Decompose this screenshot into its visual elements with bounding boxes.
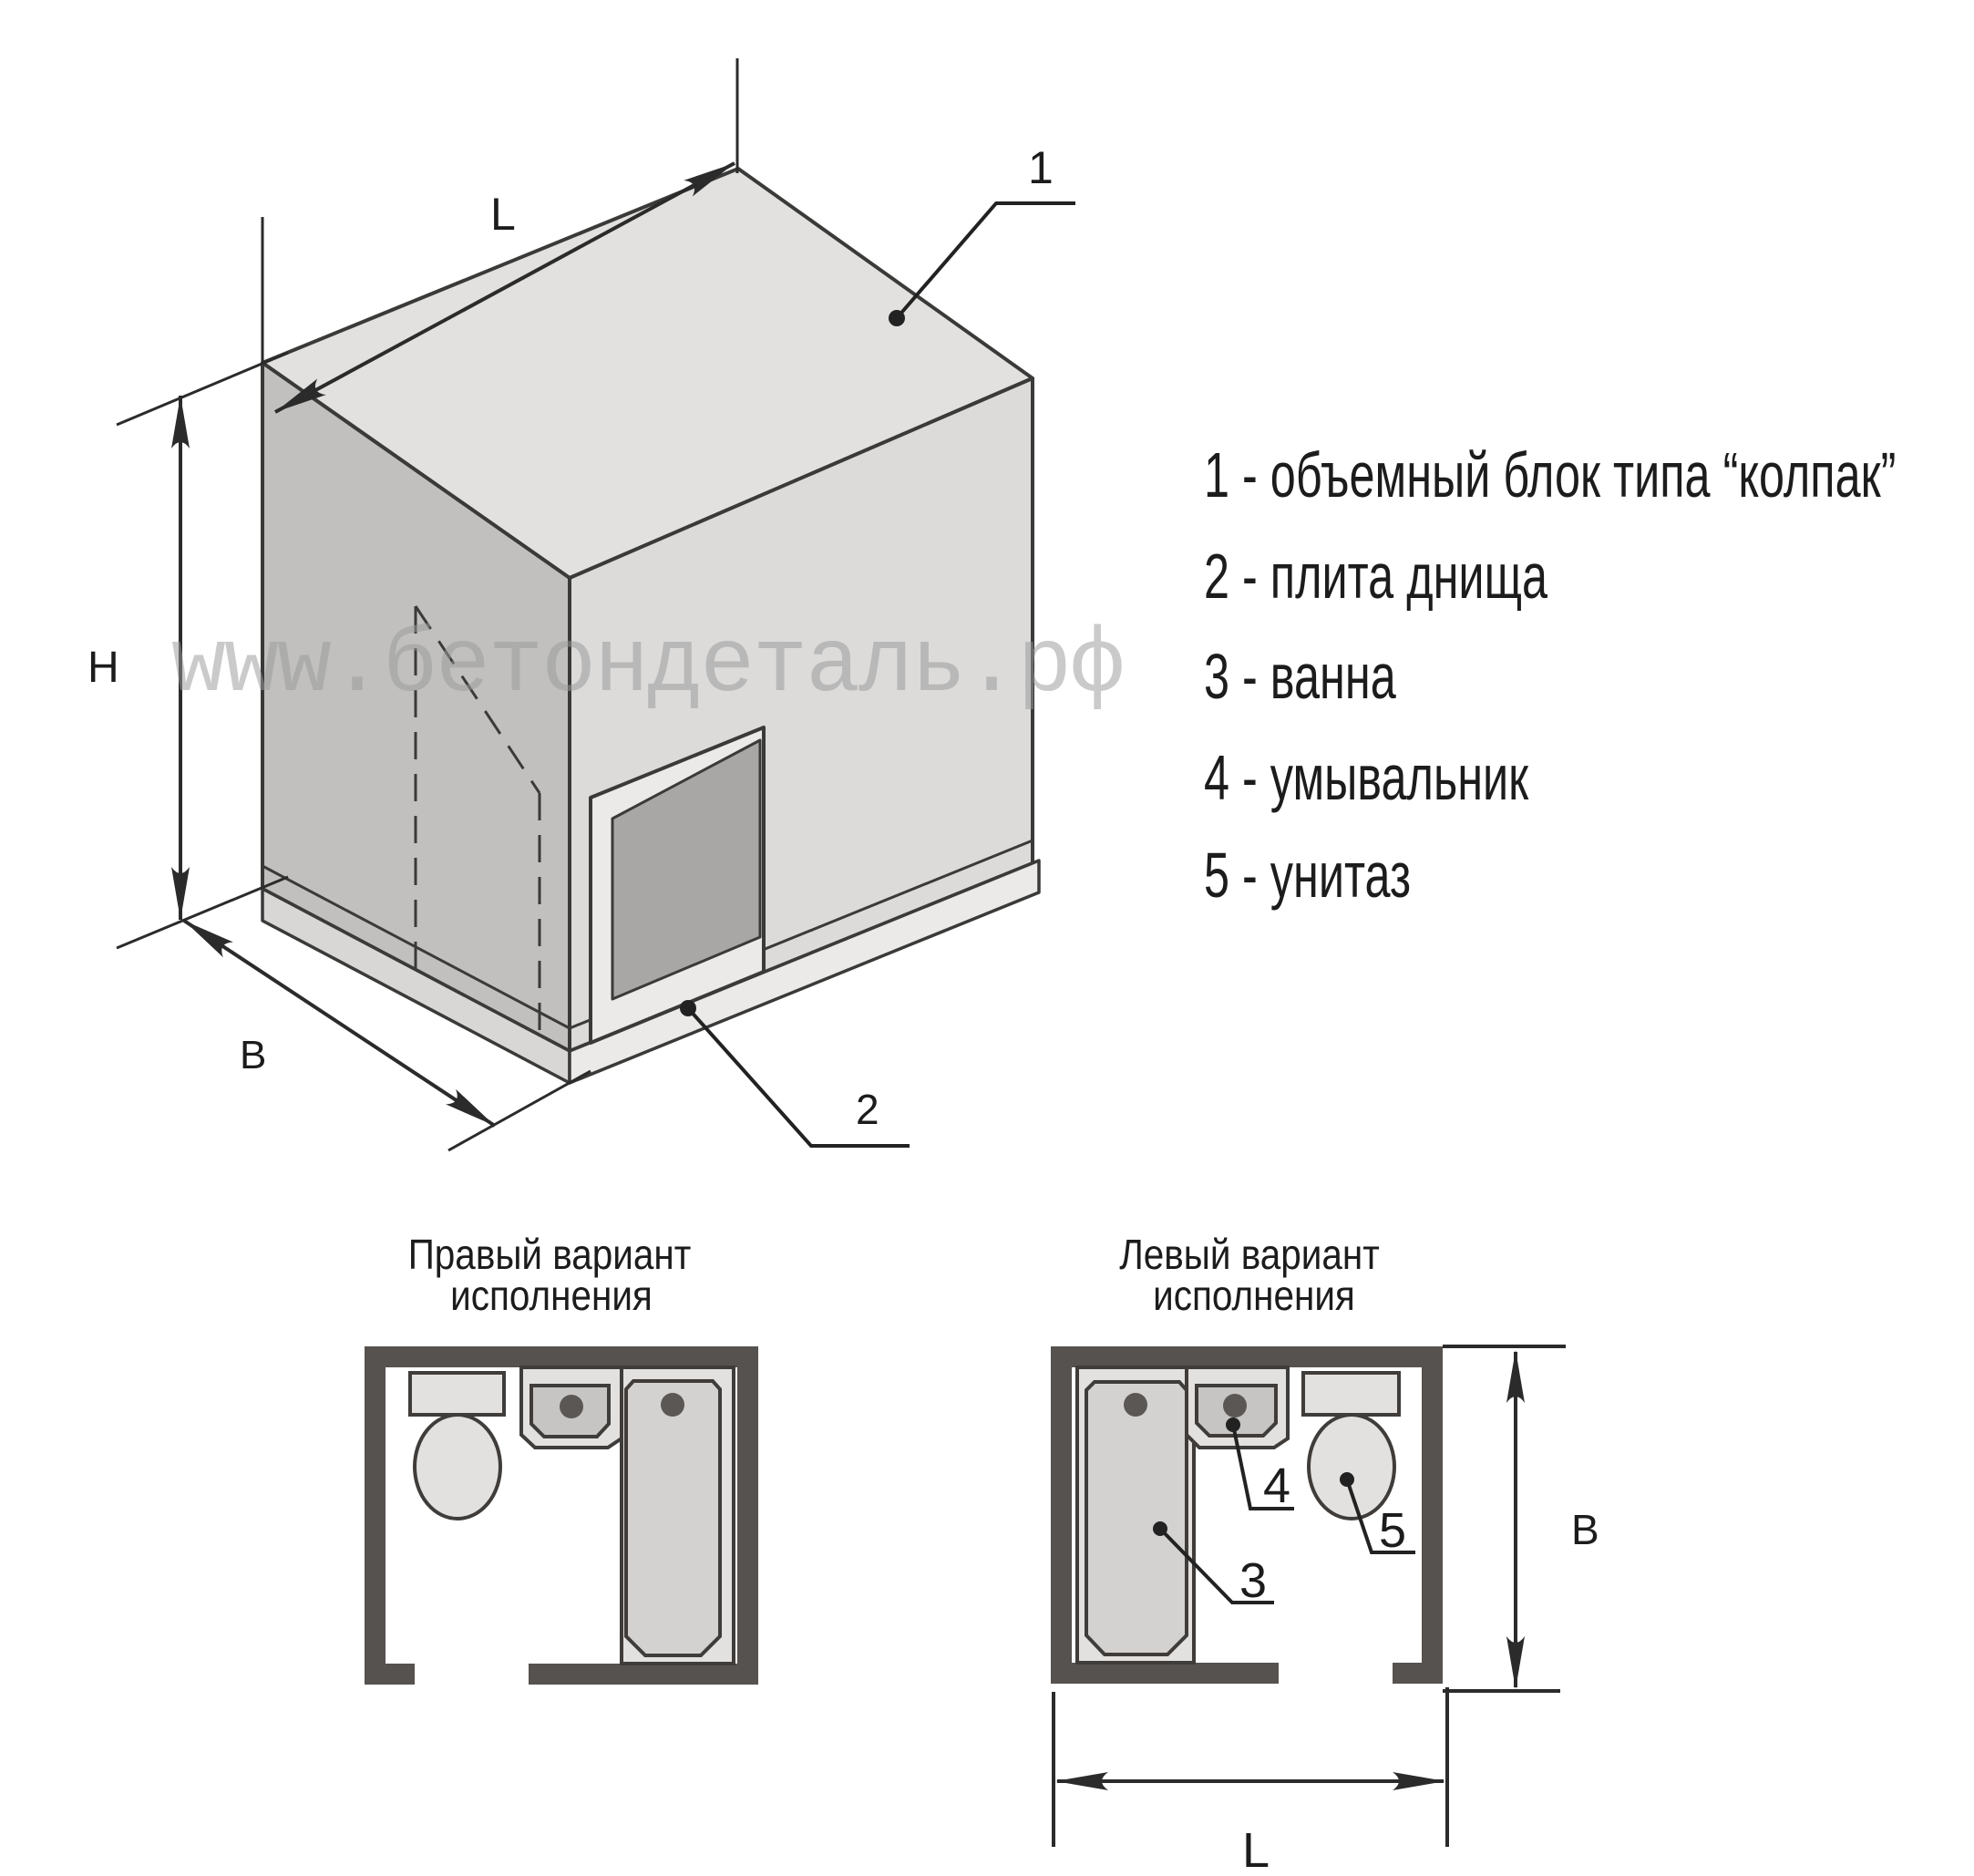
arrowhead-icon [1506, 1350, 1525, 1403]
plan-right-variant: Правый вариант исполнения [365, 1232, 758, 1685]
plan-dim-B-label: В [1571, 1506, 1599, 1553]
bathtub [622, 1367, 734, 1664]
dim-L-label: L [490, 189, 516, 240]
bathtub-inner [1086, 1382, 1187, 1654]
callout-2-label: 2 [856, 1086, 879, 1133]
arrowhead-icon [1055, 1772, 1108, 1790]
callout-3-label: 3 [1239, 1553, 1267, 1608]
plan-left-title-line1: Левый вариант [1119, 1232, 1380, 1279]
toilet-bowl [415, 1415, 500, 1519]
legend-item-4: 4 - умывальник [1204, 742, 1528, 813]
bathtub [1077, 1367, 1194, 1663]
legend-item-5: 5 - унитаз [1204, 840, 1411, 911]
bathtub-drain-icon [661, 1393, 684, 1417]
bathtub-drain-icon [1124, 1393, 1147, 1417]
legend: 1 - объемный блок типа “колпак” 2 - плит… [1204, 439, 1896, 911]
sink-faucet-icon [1223, 1394, 1247, 1417]
callout-5-label: 5 [1379, 1503, 1406, 1558]
plan-dim-L: L [1054, 1687, 1447, 1876]
wall-left [1051, 1346, 1072, 1684]
dim-B-label: B [240, 1033, 266, 1077]
arrowhead-icon [171, 396, 190, 448]
sink [1187, 1367, 1288, 1448]
wall-bottom-right [529, 1664, 758, 1685]
technical-drawing: L H B 1 2 [0, 0, 1974, 1876]
legend-item-1: 1 - объемный блок типа “колпак” [1204, 439, 1896, 510]
legend-item-3: 3 - ванна [1204, 641, 1396, 712]
plan-right-title-line2: исполнения [450, 1273, 653, 1320]
wall-bottom-left [1051, 1663, 1279, 1684]
technical-drawing-page: L H B 1 2 [0, 0, 1974, 1876]
wall-top [1051, 1346, 1443, 1367]
plan-left-title-line2: исполнения [1153, 1273, 1355, 1320]
toilet [410, 1373, 504, 1519]
toilet-tank [1303, 1373, 1399, 1415]
bathtub-inner [626, 1381, 720, 1655]
wall-left [365, 1346, 386, 1685]
wall-bottom-left-stub [365, 1664, 415, 1685]
toilet-tank [410, 1373, 504, 1415]
plan-dim-B: В [1443, 1346, 1599, 1691]
sink [521, 1367, 622, 1448]
wall-bottom-right-stub [1393, 1663, 1443, 1684]
plan-left-variant: Левый вариант исполнения [1051, 1232, 1599, 1876]
watermark: www.бетондеталь.рф [171, 615, 1123, 718]
wall-right [1422, 1346, 1443, 1684]
arrowhead-icon [171, 867, 190, 920]
dim-H-label: H [87, 644, 119, 692]
sink-faucet-icon [560, 1395, 583, 1418]
wall-top [365, 1346, 758, 1367]
isometric-view: L H B 1 2 [87, 58, 1075, 1150]
wall-right [737, 1346, 758, 1685]
plan-dim-L-label: L [1242, 1823, 1270, 1876]
legend-item-2: 2 - плита днища [1204, 541, 1547, 612]
arrowhead-icon [1506, 1636, 1525, 1689]
callout-1-label: 1 [1028, 142, 1054, 193]
plan-right-title-line1: Правый вариант [408, 1232, 692, 1279]
arrowhead-icon [1393, 1772, 1445, 1790]
callout-4-label: 4 [1263, 1459, 1290, 1513]
